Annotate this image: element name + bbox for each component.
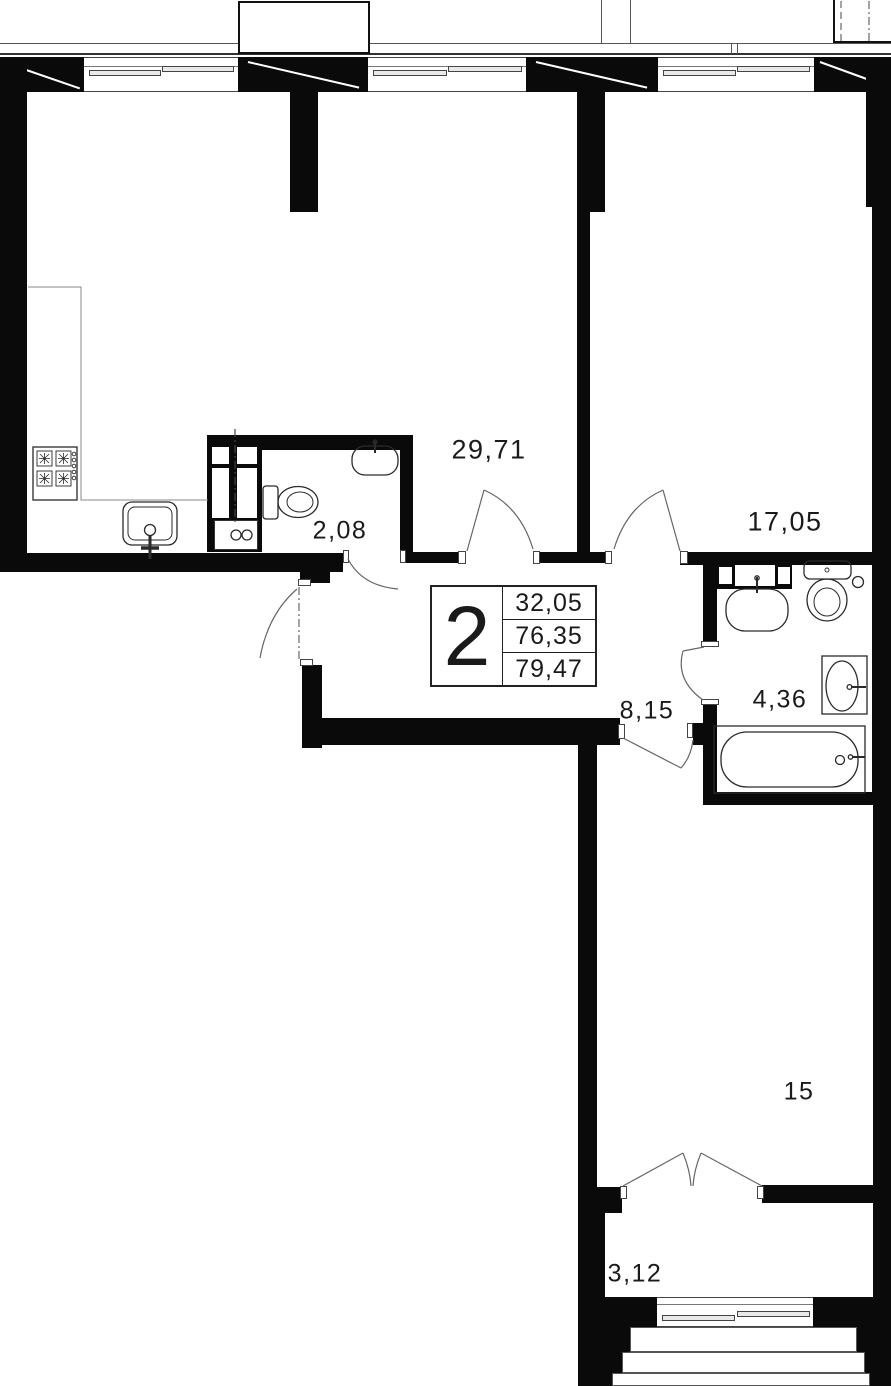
door-swing-living	[467, 490, 533, 551]
meter-icon	[231, 530, 252, 540]
toilet-icon	[263, 486, 318, 519]
door-swing-bedroom	[614, 490, 680, 551]
floor-plan: 29,71 17,05 2,08 8,15 4,36 15 3,12 2 32,…	[0, 0, 891, 1386]
balcony-door-right-leaf	[693, 1153, 762, 1186]
door-swing-wc	[348, 559, 398, 589]
stove-icon	[33, 447, 77, 500]
door-swing-entrance	[260, 589, 297, 658]
kitchen-sink-icon	[123, 502, 177, 559]
balcony-door-left-leaf	[623, 1153, 691, 1186]
floor-drain-icon	[853, 577, 864, 588]
bathtub-icon	[714, 726, 865, 793]
wc-sink-icon	[352, 440, 398, 475]
fixtures-layer	[0, 0, 891, 1386]
vanity-sink-icon	[822, 656, 867, 714]
door-swing-room	[623, 738, 693, 768]
door-swings	[235, 1, 869, 1186]
door-swing-bathroom	[681, 647, 704, 700]
bathroom-toilet-icon	[804, 561, 851, 621]
kitchen-counter	[28, 287, 208, 500]
bathroom-sink-icon	[726, 576, 788, 631]
